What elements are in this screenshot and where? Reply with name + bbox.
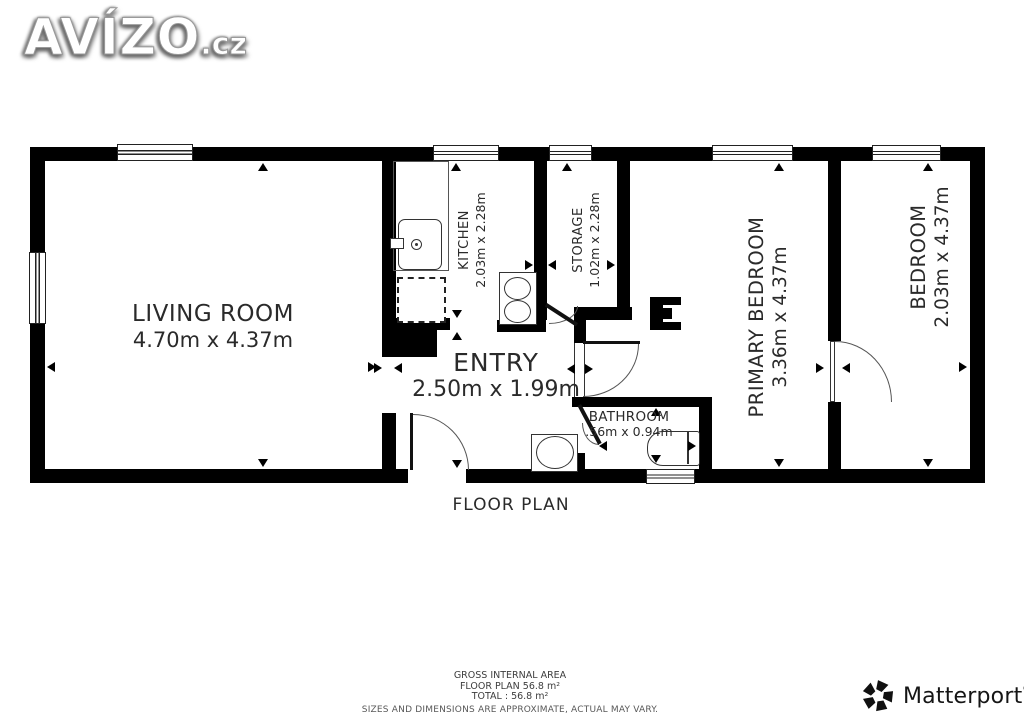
window-livingroom-top [117, 144, 193, 161]
floor-plan-page: AVÍZO.cz [0, 0, 1024, 724]
window-bathroom-bottom [646, 469, 695, 484]
dim-arrow [451, 163, 461, 171]
avizo-logo: AVÍZO.cz [24, 8, 247, 66]
window-kitchen-top [433, 145, 499, 161]
dim-arrow [258, 163, 268, 171]
gross-internal-area-label: GROSS INTERNAL AREA [310, 671, 710, 682]
dim-arrow [599, 441, 607, 451]
plan-caption: FLOOR PLAN [411, 495, 611, 515]
area-summary: GROSS INTERNAL AREA FLOOR PLAN 56.8 m² T… [310, 671, 710, 715]
room-name: STORAGE [571, 207, 587, 272]
dim-arrow [651, 455, 661, 463]
room-dims: 3.36m x 4.37m [769, 246, 792, 387]
room-name: BEDROOM [907, 204, 931, 309]
window-storage-top [549, 145, 592, 161]
disclaimer: SIZES AND DIMENSIONS ARE APPROXIMATE, AC… [310, 705, 710, 716]
room-name: KITCHEN [457, 210, 473, 270]
dim-arrow [374, 363, 382, 373]
room-dims: 4.70m x 4.37m [88, 328, 338, 352]
room-dims: 2.03m x 4.37m [931, 186, 954, 327]
toilet-bowl [536, 436, 574, 469]
room-dims: 1.02m x 2.28m [587, 192, 602, 287]
dim-arrow [688, 441, 696, 451]
wall-bottom [30, 469, 985, 483]
dim-arrow [562, 163, 572, 171]
sink-soap-dispenser [390, 238, 404, 249]
matterport-logo: Matterport® [860, 678, 1024, 714]
matterport-pinwheel-icon [860, 678, 896, 714]
avizo-logo-text: AVÍZO [24, 8, 200, 66]
dim-arrow [47, 362, 55, 372]
room-name: ENTRY [398, 349, 594, 377]
room-name: PRIMARY BEDROOM [745, 217, 769, 418]
dim-arrow [774, 163, 784, 171]
wall-livingroom-entry-stub [382, 413, 396, 469]
dim-arrow [258, 459, 268, 467]
stove-burner-2 [504, 300, 531, 323]
matterport-wordmark: Matterport® [903, 684, 1024, 709]
dim-arrow [923, 459, 933, 467]
room-dims: 2.03m x 2.28m [473, 192, 488, 287]
dim-arrow [452, 332, 462, 340]
total-area: TOTAL : 56.8 m² [310, 692, 710, 703]
window-primary-top [712, 145, 793, 161]
entry-door-opening [408, 469, 466, 483]
dim-arrow [452, 460, 462, 468]
room-dims: 2.50m x 1.99m [398, 377, 594, 402]
wall-bathroom-left-low [577, 453, 585, 470]
room-name: LIVING ROOM [88, 301, 338, 328]
label-living-room: LIVING ROOM 4.70m x 4.37m [88, 301, 338, 352]
dim-arrow [452, 310, 462, 318]
avizo-logo-tld: .cz [200, 27, 247, 62]
label-storage: STORAGE 1.02m x 2.28m [526, 180, 646, 300]
window-livingroom-left [29, 252, 46, 324]
label-bedroom: BEDROOM 2.03m x 4.37m [818, 145, 1024, 369]
label-kitchen: KITCHEN 2.03m x 2.28m [412, 180, 532, 300]
label-entry: ENTRY 2.50m x 1.99m [398, 349, 594, 402]
dim-arrow [774, 459, 784, 467]
